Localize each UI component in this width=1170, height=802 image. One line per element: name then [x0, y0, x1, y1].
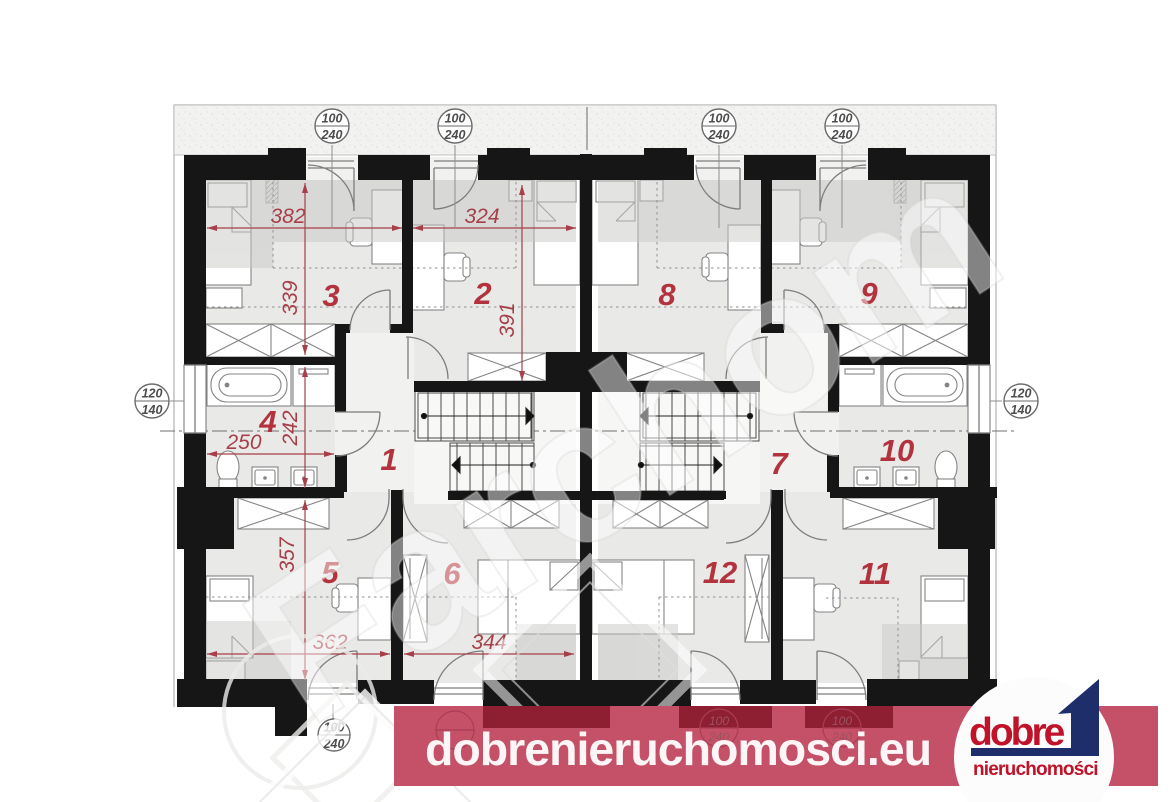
svg-text:2: 2: [473, 276, 491, 311]
svg-text:10: 10: [880, 433, 914, 468]
svg-text:120: 120: [1011, 387, 1032, 401]
svg-text:11: 11: [859, 556, 891, 591]
svg-text:100: 100: [709, 112, 730, 126]
svg-text:339: 339: [279, 280, 302, 315]
svg-text:250: 250: [225, 431, 261, 454]
svg-text:4: 4: [258, 404, 276, 439]
svg-text:324: 324: [464, 205, 499, 228]
svg-text:120: 120: [142, 387, 163, 401]
svg-text:382: 382: [270, 205, 305, 228]
svg-text:dobrenieruchomosci.eu: dobrenieruchomosci.eu: [425, 723, 931, 775]
svg-text:391: 391: [496, 302, 519, 337]
svg-text:dobre: dobre: [969, 711, 1065, 754]
svg-text:240: 240: [321, 128, 343, 142]
svg-text:12: 12: [703, 555, 737, 590]
svg-text:100: 100: [322, 112, 343, 126]
svg-text:140: 140: [1011, 403, 1032, 417]
svg-text:240: 240: [444, 128, 466, 142]
svg-text:100: 100: [445, 112, 466, 126]
svg-text:140: 140: [142, 403, 163, 417]
svg-text:240: 240: [708, 128, 730, 142]
svg-text:242: 242: [279, 410, 302, 446]
svg-text:3: 3: [322, 278, 339, 313]
svg-text:nieruchomości: nieruchomości: [973, 759, 1098, 780]
svg-text:100: 100: [832, 112, 853, 126]
svg-text:240: 240: [831, 128, 853, 142]
